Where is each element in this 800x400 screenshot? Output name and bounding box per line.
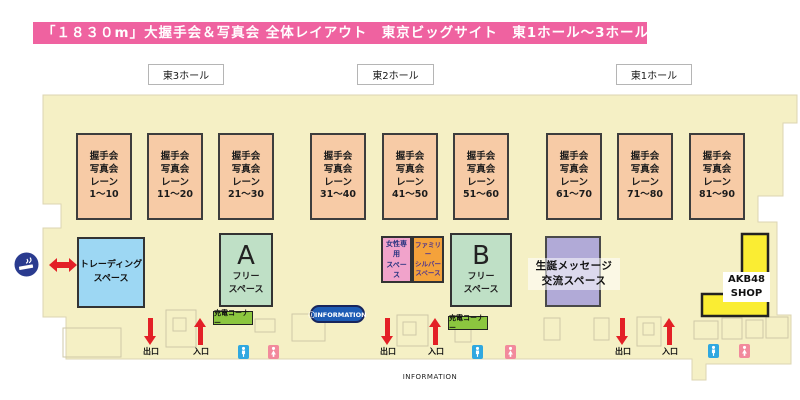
lane-text: 握手会: [631, 151, 660, 164]
lane-text: 写真会: [232, 164, 261, 177]
lane-text: 写真会: [703, 164, 732, 177]
lane-text: 握手会: [232, 151, 261, 164]
family-silver-label: シルバー: [415, 260, 441, 269]
free-space-b-letter: B: [472, 243, 490, 270]
lane-text: レーン: [232, 177, 260, 190]
lane-text: 握手会: [324, 151, 353, 164]
free-space-a-letter: A: [237, 243, 255, 270]
information-text: INFORMATION: [385, 373, 475, 381]
lane-text: レーン: [396, 177, 424, 190]
trading-space-label: トレーディング: [80, 259, 142, 273]
trading-space: トレーディング スペース: [77, 237, 145, 308]
women-only-label: スペース: [383, 260, 410, 281]
lane-text: レーン: [467, 177, 495, 190]
lane-box-1: 握手会写真会レーン1〜10: [76, 133, 132, 220]
lane-text: 握手会: [90, 151, 119, 164]
free-space-a-label: フリー: [232, 271, 259, 284]
exit-arrow-icon: [616, 318, 629, 344]
lane-box-5: 握手会写真会レーン41〜50: [382, 133, 438, 220]
birthday-message-text: 生誕メッセージ: [536, 259, 613, 274]
exit-arrow-icon: [144, 318, 157, 344]
entrance-arrow-icon: [194, 318, 207, 344]
page-title: 「１８３０m」大握手会＆写真会 全体レイアウト 東京ビッグサイト 東1ホール〜3…: [33, 22, 647, 44]
exit-label: 出口: [373, 346, 403, 357]
charging-corner-2: 充電コーナー: [448, 316, 488, 330]
exit-label: 出口: [608, 346, 638, 357]
hall-label-east2: 東2ホール: [357, 64, 434, 85]
lane-text: 写真会: [631, 164, 660, 177]
floor-plan: 「１８３０m」大握手会＆写真会 全体レイアウト 東京ビッグサイト 東1ホール〜3…: [0, 0, 800, 400]
akb48-shop-text: AKB48: [728, 273, 765, 287]
exit-arrow-icon: [381, 318, 394, 344]
lane-range: 81〜90: [699, 189, 735, 202]
free-space-a: A フリー スペース: [219, 233, 273, 307]
family-silver-label: スペース: [415, 269, 440, 278]
lane-range: 71〜80: [627, 189, 663, 202]
lane-text: レーン: [90, 177, 118, 190]
lane-text: 写真会: [324, 164, 353, 177]
hall-label-east1: 東1ホール: [616, 64, 692, 85]
exit-label: 出口: [136, 346, 166, 357]
lane-text: レーン: [161, 177, 189, 190]
lane-box-9: 握手会写真会レーン81〜90: [689, 133, 745, 220]
restroom-men-icon: [238, 345, 249, 359]
information-pill: ⓘINFORMATION: [310, 305, 365, 323]
lane-range: 1〜10: [89, 189, 118, 202]
lane-range: 41〜50: [392, 189, 428, 202]
lane-range: 31〜40: [320, 189, 356, 202]
family-silver-space: ファミリー シルバー スペース: [412, 236, 444, 283]
lane-range: 11〜20: [157, 189, 193, 202]
smoking-area-icon: [14, 252, 39, 277]
free-space-b-label: フリー: [467, 271, 494, 284]
free-space-b-label: スペース: [464, 284, 499, 297]
lane-text: 写真会: [161, 164, 190, 177]
lane-box-8: 握手会写真会レーン71〜80: [617, 133, 673, 220]
lane-text: 握手会: [703, 151, 732, 164]
entrance-arrow-icon: [663, 318, 676, 344]
women-only-label: 女性専用: [383, 239, 410, 260]
entrance-label: 入口: [186, 346, 216, 357]
restroom-men-icon: [708, 344, 719, 358]
entrance-arrow-icon: [429, 318, 442, 344]
family-silver-label: ファミリー: [414, 241, 442, 260]
free-space-b: B フリー スペース: [450, 233, 512, 307]
lane-box-6: 握手会写真会レーン51〜60: [453, 133, 509, 220]
restroom-women-icon: [505, 345, 516, 359]
birthday-message-text: 交流スペース: [542, 274, 607, 289]
akb48-shop-label: AKB48 SHOP: [723, 272, 770, 302]
lane-text: 写真会: [560, 164, 589, 177]
women-only-space: 女性専用 スペース: [381, 236, 412, 283]
lane-text: レーン: [324, 177, 352, 190]
akb48-shop-text: SHOP: [731, 287, 762, 301]
trading-space-label: スペース: [94, 273, 129, 287]
lane-box-7: 握手会写真会レーン61〜70: [546, 133, 602, 220]
double-arrow-icon: [49, 257, 77, 273]
lane-range: 61〜70: [556, 189, 592, 202]
entrance-label: 入口: [655, 346, 685, 357]
lane-box-2: 握手会写真会レーン11〜20: [147, 133, 203, 220]
lane-text: 握手会: [560, 151, 589, 164]
restroom-women-icon: [739, 344, 750, 358]
lane-range: 21〜30: [228, 189, 264, 202]
lane-text: 写真会: [396, 164, 425, 177]
lane-text: 握手会: [396, 151, 425, 164]
free-space-a-label: スペース: [229, 284, 264, 297]
lane-box-4: 握手会写真会レーン31〜40: [310, 133, 366, 220]
birthday-message-label: 生誕メッセージ 交流スペース: [528, 258, 620, 290]
entrance-label: 入口: [421, 346, 451, 357]
lane-text: レーン: [631, 177, 659, 190]
lane-text: レーン: [560, 177, 588, 190]
lane-text: レーン: [703, 177, 731, 190]
charging-corner-1: 充電コーナー: [213, 311, 253, 325]
hall-label-east3: 東3ホール: [148, 64, 224, 85]
lane-text: 写真会: [90, 164, 119, 177]
lane-range: 51〜60: [463, 189, 499, 202]
lane-text: 写真会: [467, 164, 496, 177]
restroom-men-icon: [472, 345, 483, 359]
lane-text: 握手会: [161, 151, 190, 164]
lane-text: 握手会: [467, 151, 496, 164]
lane-box-3: 握手会写真会レーン21〜30: [218, 133, 274, 220]
restroom-women-icon: [268, 345, 279, 359]
